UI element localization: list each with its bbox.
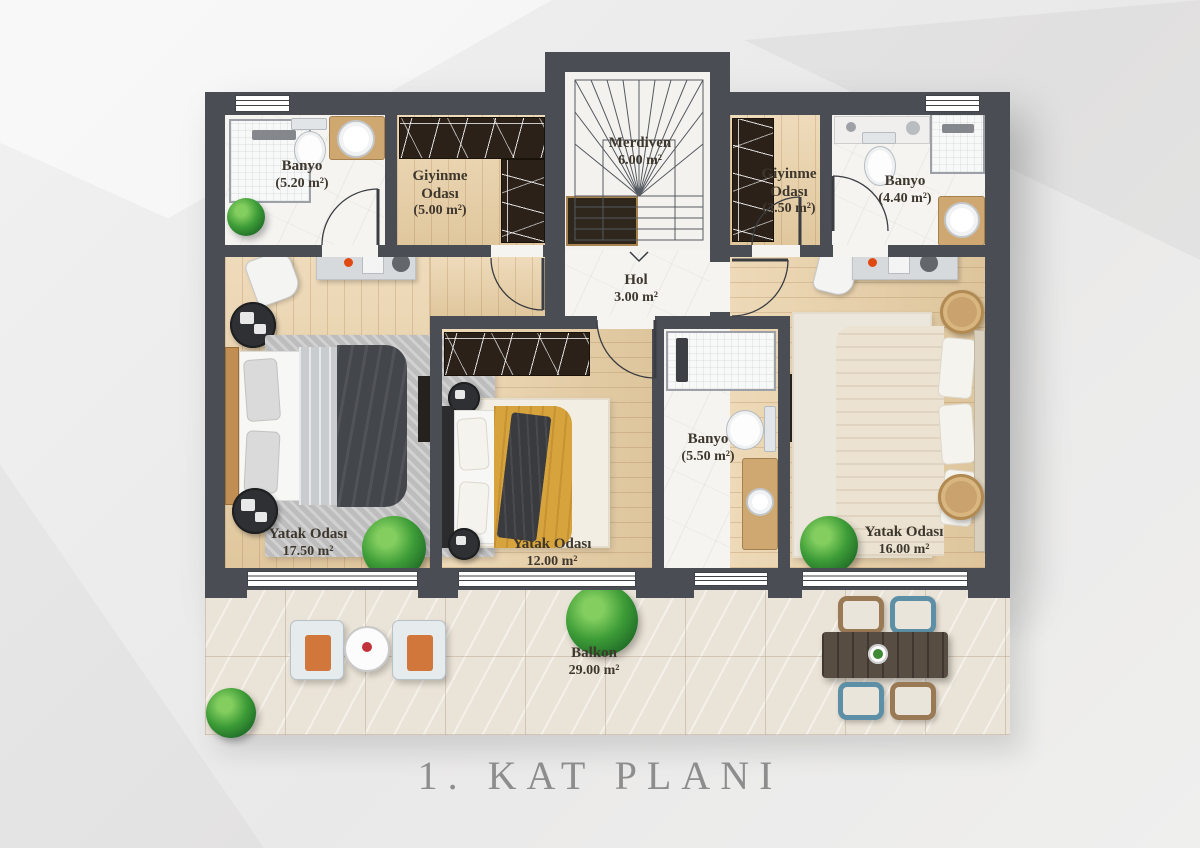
bed-double-2 [440, 406, 572, 548]
sink-1 [337, 120, 375, 158]
room-area: 16.00 m² [865, 542, 944, 559]
wall-pillar [205, 568, 247, 598]
wall-stairwell-right [710, 52, 730, 262]
headboard [225, 347, 239, 505]
shower-head-2 [942, 124, 974, 133]
room-label-balkon: Balkon 29.00 m² [569, 645, 620, 679]
sink-2 [944, 202, 980, 238]
bed-double-1 [225, 345, 407, 507]
window [694, 572, 768, 586]
room-area: (4.40 m²) [878, 191, 931, 208]
toilet-tank-3 [764, 406, 776, 452]
bedroom-1-entry-strip [430, 257, 562, 316]
wall-pillar [636, 568, 694, 598]
room-name: Giyinme Odası [748, 166, 830, 201]
room-area: 3.00 m² [614, 290, 658, 307]
chair-cushion [407, 635, 433, 671]
wall-exterior-left [205, 92, 225, 590]
chair-cushion [305, 635, 331, 671]
wall-divider-bedroom2-banyo3 [652, 329, 664, 568]
pillow [243, 430, 280, 494]
room-label-yatak-1: Yatak Odası 17.50 m² [269, 526, 348, 560]
door-opening [491, 245, 543, 257]
room-area: (3.50 m²) [748, 201, 830, 218]
wardrobe [501, 159, 545, 243]
wicker-side-table [938, 474, 984, 520]
desk-item-red [344, 258, 353, 267]
desk-item-red [868, 258, 877, 267]
room-area: 12.00 m² [513, 554, 592, 571]
room-area: 6.00 m² [609, 153, 671, 170]
door-opening [752, 245, 800, 257]
wall-divider-banyo3-bedroom3 [778, 329, 790, 568]
wall-divider-banyo1-giyinme1 [385, 115, 397, 245]
wardrobe [399, 117, 545, 159]
plant [206, 688, 256, 738]
window [925, 95, 980, 112]
dining-chair-brown [890, 682, 936, 720]
room-name: Banyo [275, 158, 328, 176]
room-name: Yatak Odası [513, 536, 592, 554]
room-area: (5.00 m²) [399, 203, 481, 220]
table-flower [362, 642, 372, 652]
headboard [974, 330, 985, 552]
toilet-tank-1 [291, 118, 327, 130]
table-plant-deco [873, 649, 883, 659]
shower-head-3 [676, 338, 688, 382]
dining-chair-blue [838, 682, 884, 720]
room-area: 17.50 m² [269, 544, 348, 561]
room-name: Yatak Odası [865, 524, 944, 542]
room-label-banyo-3: Banyo (5.50 m²) [681, 431, 734, 465]
door-opening [833, 245, 888, 257]
balcony-sliding-door [247, 571, 418, 587]
room-label-merdiven: Merdiven 6.00 m² [609, 135, 671, 169]
room-label-banyo-1: Banyo (5.20 m²) [275, 158, 328, 192]
room-label-yatak-2: Yatak Odası 12.00 m² [513, 536, 592, 570]
wall-exterior-right [985, 92, 1010, 590]
wall-pillar [418, 568, 458, 598]
wall-stairwell-left [545, 52, 565, 320]
wardrobe [444, 332, 590, 376]
wall-stairwell-top [545, 52, 730, 72]
room-name: Hol [614, 272, 658, 290]
window [235, 95, 290, 112]
blanket-dark [337, 345, 407, 507]
room-area: (5.50 m²) [681, 449, 734, 466]
toiletry-item [906, 121, 920, 135]
wall-divider-bedroom1-bedroom2 [430, 329, 442, 568]
stair-landing [566, 196, 638, 246]
pillow [456, 417, 490, 471]
shower-2 [930, 112, 985, 174]
headboard [440, 406, 454, 548]
wall-pillar [968, 568, 1010, 598]
pillow [456, 481, 490, 535]
floor-plan-scene: Banyo (5.20 m²) Giyinme Odası (5.00 m²) … [0, 0, 1200, 848]
door-opening [597, 316, 655, 329]
room-label-banyo-2: Banyo (4.40 m²) [878, 173, 931, 207]
pillow [938, 403, 976, 465]
blanket-cream [836, 326, 944, 556]
room-label-giyinme-1: Giyinme Odası (5.00 m²) [399, 168, 481, 220]
room-name: Merdiven [609, 135, 671, 153]
wall-pillar [768, 568, 802, 598]
room-area: (5.20 m²) [275, 176, 328, 193]
toilet-tank-2 [862, 132, 896, 144]
plant [227, 198, 265, 236]
page-title: 1. KAT PLANI [0, 752, 1200, 799]
room-label-hol: Hol 3.00 m² [614, 272, 658, 306]
plant [800, 516, 858, 574]
toiletry-item [846, 122, 856, 132]
door-opening [710, 262, 730, 312]
dining-chair-brown [838, 596, 884, 634]
pillow [243, 358, 281, 422]
sink-3 [746, 488, 774, 516]
lounge-chair [290, 620, 344, 680]
shower-head-1 [252, 130, 296, 140]
room-name: Balkon [569, 645, 620, 663]
room-name: Yatak Odası [269, 526, 348, 544]
balcony-sliding-door [458, 571, 636, 587]
balcony-sliding-door [802, 571, 968, 587]
room-area: 29.00 m² [569, 663, 620, 680]
room-label-yatak-3: Yatak Odası 16.00 m² [865, 524, 944, 558]
door-opening [322, 245, 378, 257]
room-name: Banyo [878, 173, 931, 191]
room-name: Banyo [681, 431, 734, 449]
pillow [937, 337, 976, 400]
room-label-giyinme-2: Giyinme Odası (3.50 m²) [748, 166, 830, 218]
nightstand [448, 528, 480, 560]
room-name: Giyinme Odası [399, 168, 481, 203]
lounge-chair [392, 620, 446, 680]
dining-chair-blue [890, 596, 936, 634]
